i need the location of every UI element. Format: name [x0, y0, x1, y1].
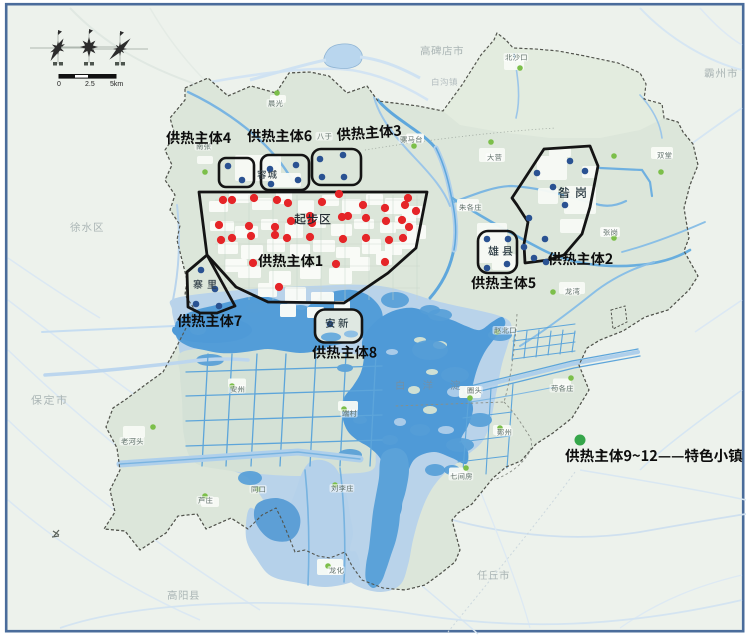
svg-text:0: 0	[57, 81, 61, 88]
svg-text:5km: 5km	[110, 81, 123, 88]
svg-text:2.5: 2.5	[85, 81, 95, 88]
